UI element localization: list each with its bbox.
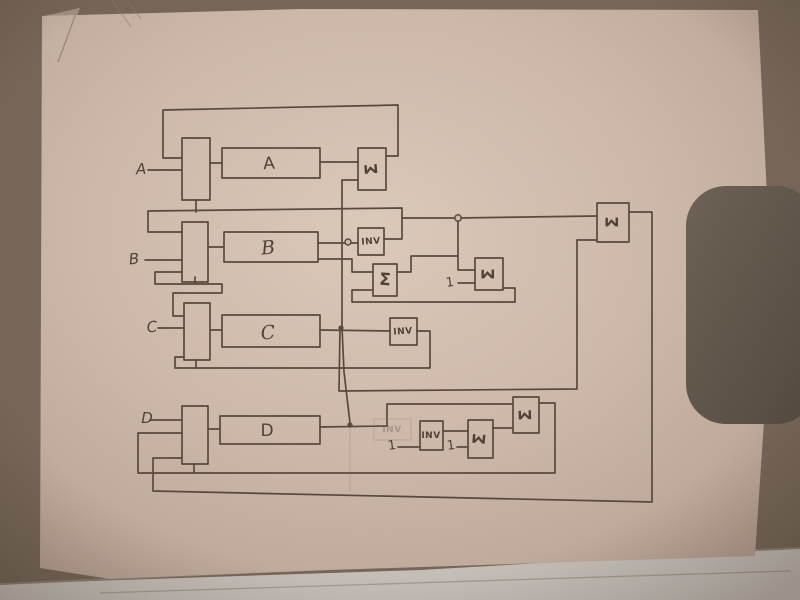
photo-of-diagram: INV A B C D A B C D INV INV INV Σ Σ Σ Σ … (0, 0, 800, 600)
photo-vignette (0, 0, 800, 600)
diagram-canvas: INV A B C D A B C D INV INV INV Σ Σ Σ Σ … (0, 0, 800, 600)
